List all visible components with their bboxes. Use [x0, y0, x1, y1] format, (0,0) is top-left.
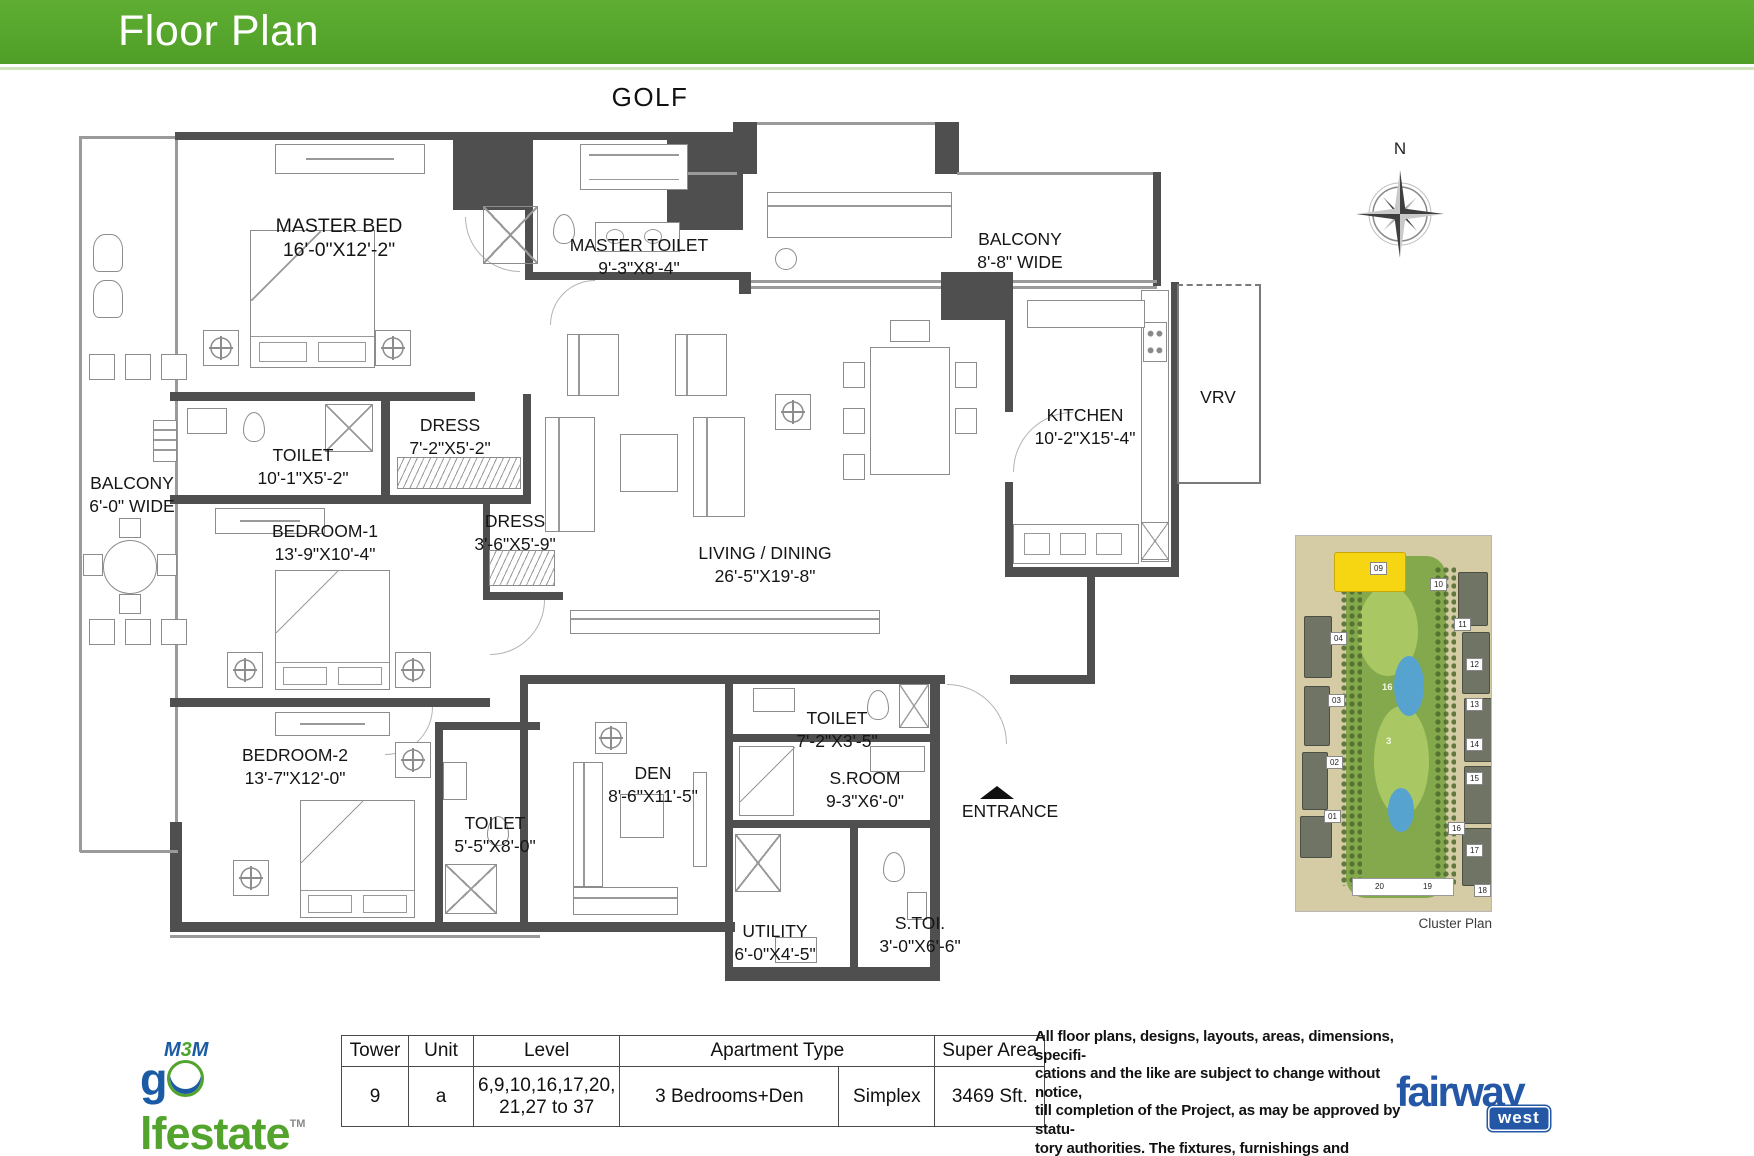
west-badge: west [1488, 1106, 1550, 1131]
wall-segment [1010, 675, 1095, 684]
dining-chair [843, 362, 865, 388]
wall-segment [170, 922, 735, 932]
cell-apartment-type: 3 Bedrooms+Den [620, 1067, 839, 1127]
side-table [775, 248, 797, 270]
room-label-master-bed: MASTER BED 16'-0"X12'-2" [276, 214, 403, 262]
ac-symbol [595, 722, 627, 754]
planter [161, 354, 187, 380]
window-line [170, 935, 540, 938]
wall-segment [170, 392, 475, 401]
room-label-toilet-2: TOILET 5'-5"X8'-0" [454, 812, 535, 857]
balcony-chair [119, 518, 141, 538]
utility-unit [735, 834, 781, 892]
den-sofa [573, 887, 678, 915]
kitchen-counter [1013, 524, 1139, 564]
hole-number: 16 [1382, 682, 1393, 693]
tower-chip: 01 [1324, 810, 1341, 823]
cluster-building [1302, 752, 1328, 810]
wall-segment [435, 722, 443, 927]
balcony-sofa [767, 192, 952, 238]
wall-segment [520, 675, 528, 925]
door-arc [947, 684, 1007, 744]
wall-segment [170, 698, 490, 707]
balcony-chair [157, 554, 177, 576]
wall-segment [381, 394, 390, 502]
door-arc [550, 280, 595, 325]
room-label-vrv: VRV [1200, 386, 1236, 409]
wall-segment [935, 122, 959, 174]
armchair [567, 334, 619, 396]
compass-icon: N [1348, 136, 1452, 268]
dresser [275, 712, 390, 736]
tower-chip: 02 [1326, 756, 1343, 769]
tree-row [1434, 566, 1456, 886]
room-label-s-toi: S.TOI. 3'-0"X6'-6" [879, 912, 960, 957]
room-label-bedroom-1: BEDROOM-1 13'-9"X10'-4" [272, 520, 378, 565]
coffee-table [620, 434, 678, 492]
tower-chip: 09 [1370, 562, 1387, 575]
table-header-row: Tower Unit Level Apartment Type Super Ar… [342, 1036, 1045, 1067]
hob [1143, 322, 1167, 362]
basin [187, 408, 227, 434]
golfestate-wordmark: glfestateTM [140, 1058, 340, 1156]
m3m-wordmark: M3M [164, 1042, 340, 1058]
room-label-master-toilet: MASTER TOILET 9'-3"X8'-4" [570, 234, 708, 279]
ac-symbol [395, 652, 431, 688]
shower [899, 684, 929, 728]
wall-segment [725, 967, 940, 981]
room-label-kitchen: KITCHEN 10'-2"X15'-4" [1035, 404, 1136, 449]
balcony-chair [83, 554, 103, 576]
wall-segment [957, 172, 1157, 175]
wall-segment [735, 122, 959, 125]
disclaimer-text: All floor plans, designs, layouts, areas… [1035, 1028, 1407, 1156]
bed-sroom [739, 746, 794, 816]
bathtub [580, 144, 688, 190]
tower-chip: 15 [1466, 772, 1483, 785]
wall-segment [170, 495, 530, 504]
shower [445, 864, 497, 914]
col-apartment-type: Apartment Type [620, 1036, 935, 1067]
balcony-bench [1027, 300, 1145, 328]
wall-segment [1005, 320, 1013, 412]
dining-chair [843, 408, 865, 434]
planter [125, 354, 151, 380]
wall-segment [1153, 172, 1161, 286]
wall-segment [523, 394, 531, 504]
wall-segment [175, 136, 178, 926]
wall-segment [483, 592, 563, 600]
room-label-dress-2: DRESS 3'-6"X5'-9" [474, 510, 555, 555]
balcony-shelf [153, 420, 177, 462]
dining-chair [843, 454, 865, 480]
cluster-building [1462, 828, 1492, 886]
golf-side-label: GOLF [560, 82, 740, 113]
page-header: Floor Plan [0, 0, 1754, 64]
cell-tower: 9 [342, 1067, 409, 1127]
cluster-plan-map: 09 10 11 12 13 14 15 16 17 18 04 03 02 0… [1295, 535, 1492, 912]
wall-segment [733, 122, 757, 174]
wall-segment [739, 272, 751, 294]
tower-chip: 20 [1372, 881, 1387, 892]
tree-row [1340, 556, 1362, 886]
lounge-chair [93, 280, 123, 318]
tower-chip: 16 [1448, 822, 1465, 835]
ac-symbol [395, 742, 431, 778]
hole-number: 3 [1386, 736, 1391, 747]
sofa [693, 417, 745, 517]
cluster-building [1304, 616, 1332, 678]
room-label-utility: UTILITY 6'-0"X4'-5" [734, 920, 815, 965]
basin [753, 688, 795, 712]
fridge [1141, 522, 1169, 560]
cluster-building [1304, 686, 1330, 746]
balcony-chair [119, 594, 141, 614]
dining-table [870, 347, 950, 475]
planter [161, 619, 187, 645]
pond [1388, 788, 1414, 832]
tower-chip: 04 [1330, 632, 1347, 645]
tower-chip: 13 [1466, 698, 1483, 711]
wall-segment [80, 850, 178, 853]
wall-segment [79, 136, 177, 139]
ac-symbol [775, 394, 811, 430]
col-unit: Unit [409, 1036, 474, 1067]
floor-plan-page: Floor Plan GOLF [0, 0, 1754, 1156]
vrv-zone [1177, 284, 1261, 484]
cell-level: 6,9,10,16,17,20, 21,27 to 37 [474, 1067, 620, 1127]
dining-chair [955, 408, 977, 434]
golf-ball-icon [167, 1060, 204, 1097]
wc-toilet [883, 852, 905, 882]
bed-bedroom2 [300, 800, 415, 918]
room-label-dress-master: DRESS 7'-2"X5'-2" [409, 414, 490, 459]
basin [443, 762, 467, 800]
room-label-toilet-1: TOILET 10'-1"X5'-2" [257, 444, 348, 489]
room-label-bedroom-2: BEDROOM-2 13'-7"X12'-0" [242, 744, 348, 789]
ac-symbol [203, 330, 239, 366]
ac-symbol [375, 330, 411, 366]
armchair [675, 334, 727, 396]
tower-chip: 17 [1466, 844, 1483, 857]
shaft-block [941, 272, 1013, 320]
floorplan-drawing: MASTER BED 16'-0"X12'-2" MASTER TOILET 9… [75, 122, 1265, 992]
tower-chip: 03 [1328, 694, 1345, 707]
table-data-row: 9 a 6,9,10,16,17,20, 21,27 to 37 3 Bedro… [342, 1067, 1045, 1127]
wardrobe [489, 550, 555, 586]
entrance-label: ENTRANCE [962, 800, 1058, 823]
wall-segment [79, 136, 82, 852]
ac-symbol [227, 652, 263, 688]
wall-segment [1087, 567, 1095, 684]
door-arc [490, 600, 545, 655]
den-sofa [573, 762, 603, 887]
wardrobe [397, 457, 521, 489]
wall-segment [1005, 482, 1013, 577]
bottom-strip [1352, 878, 1454, 896]
tower-chip: 19 [1420, 881, 1435, 892]
page-title: Floor Plan [118, 7, 319, 56]
sideboard [570, 610, 880, 634]
cell-unit: a [409, 1067, 474, 1127]
wall-segment [170, 822, 182, 927]
tower-chip: 11 [1454, 618, 1471, 631]
room-label-balcony-top: BALCONY 8'-8" WIDE [977, 228, 1062, 273]
dresser [275, 144, 425, 174]
room-label-toilet-3: TOILET 7'-2"X3'-5" [796, 707, 877, 752]
cell-super-area: 3469 Sft. [935, 1067, 1045, 1127]
planter [125, 619, 151, 645]
entrance-arrow-icon [980, 786, 1014, 799]
planter [89, 354, 115, 380]
room-label-s-room: S.ROOM 9-3"X6'-0" [826, 767, 904, 812]
tower-chip: 10 [1430, 578, 1447, 591]
room-label-balcony-left: BALCONY 6'-0" WIDE [89, 472, 174, 517]
wall-segment [725, 675, 733, 975]
ac-symbol [233, 860, 269, 896]
fairway-west-logo: fairway west [1396, 1072, 1576, 1112]
tower-chip: 14 [1466, 738, 1483, 751]
tower-chip: 12 [1466, 658, 1483, 671]
unit-summary-table: Tower Unit Level Apartment Type Super Ar… [341, 1035, 1045, 1127]
dining-chair [890, 320, 930, 342]
col-tower: Tower [342, 1036, 409, 1067]
fairway-wordmark: fairway [1396, 1072, 1576, 1112]
compass-n-label: N [1394, 139, 1406, 158]
col-super-area: Super Area [935, 1036, 1045, 1067]
wall-segment [175, 132, 475, 140]
lounge-chair [93, 234, 123, 272]
room-label-den: DEN 8'-6"X11'-5" [608, 762, 698, 807]
wall-segment [733, 820, 940, 828]
cluster-plan-caption: Cluster Plan [1330, 916, 1492, 931]
room-label-living-dining: LIVING / DINING 26'-5"X19'-8" [698, 542, 831, 587]
cell-plan-type: Simplex [839, 1067, 935, 1127]
compass-rose: N [1348, 136, 1452, 273]
col-level: Level [474, 1036, 620, 1067]
pond [1394, 656, 1424, 716]
planter [89, 619, 115, 645]
wall-segment [850, 824, 858, 979]
bed-bedroom1 [275, 570, 390, 690]
tower-chip: 18 [1474, 884, 1491, 897]
balcony-table [103, 540, 157, 594]
dining-chair [955, 362, 977, 388]
shower [483, 206, 538, 264]
m3m-golfestate-logo: M3M glfestateTM Finest Golf Resort Livin… [140, 1042, 340, 1156]
wc-toilet [243, 412, 265, 442]
shaft-block [453, 138, 525, 210]
